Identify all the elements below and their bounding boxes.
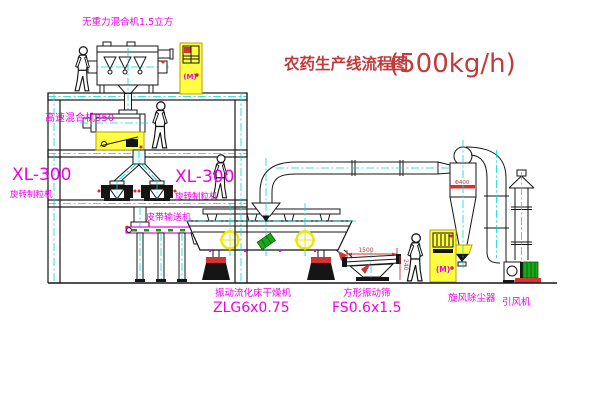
control-cabinet-2: (M) — [430, 230, 456, 282]
process-flow-diagram: (M) — [0, 0, 600, 403]
cabinet-1-mark: (M) — [183, 73, 196, 81]
label-dryer-model: ZLG6x0.75 — [213, 300, 290, 316]
diagram-title-capacity: (500kg/h) — [389, 49, 516, 79]
discharge-valve — [456, 254, 469, 262]
granulator-right — [138, 181, 177, 201]
screen-hopper — [350, 264, 393, 277]
y-chute — [114, 150, 161, 181]
person-figure-ground — [407, 234, 422, 281]
fan-base — [515, 278, 541, 283]
person-figure-roof — [75, 47, 89, 91]
label-high-speed-mixer: 高速混合机350 — [45, 111, 114, 124]
exhaust-stack — [509, 170, 534, 262]
label-belt-conveyor: 皮带输送机 — [146, 211, 191, 223]
gravity-free-mixer — [86, 42, 173, 93]
label-granulator-left-name: 旋转制粒机 — [10, 189, 53, 200]
cyclone-dim-label: Φ400 — [455, 180, 470, 186]
granulator-left — [98, 181, 137, 201]
label-fan: 引风机 — [502, 296, 531, 308]
induced-draft-fan — [503, 262, 541, 283]
belt-conveyor — [126, 226, 203, 282]
dryer-support-right — [307, 263, 335, 280]
control-cabinet-1: (M) — [180, 43, 202, 94]
cabinet-2-mark: (M) — [436, 265, 450, 274]
dryer-support-left — [202, 263, 230, 280]
screen-width-dim: 1500 — [358, 247, 373, 254]
screen-height-dim: 240 — [402, 259, 409, 271]
label-granulator-right-model: XL-300 — [175, 167, 234, 187]
label-screen-model: FS0.6x1.5 — [332, 300, 402, 316]
label-cyclone: 旋风除尘器 — [448, 292, 496, 304]
person-figure-floor2 — [152, 102, 167, 148]
label-screen-name: 方形振动筛 — [343, 287, 391, 299]
fan-motor — [523, 262, 538, 278]
label-gravity-mixer: 无重力混合机1.5立方 — [82, 16, 173, 28]
exhaust-duct — [252, 158, 455, 222]
label-dryer-name: 振动流化床干燥机 — [215, 287, 292, 299]
vibrating-screen: 1500 240 — [342, 247, 409, 281]
label-granulator-right-name: 旋转制粒机 — [175, 191, 218, 202]
drawing-sheet: (M) — [0, 0, 600, 403]
label-granulator-left-model: XL-300 — [12, 165, 71, 185]
